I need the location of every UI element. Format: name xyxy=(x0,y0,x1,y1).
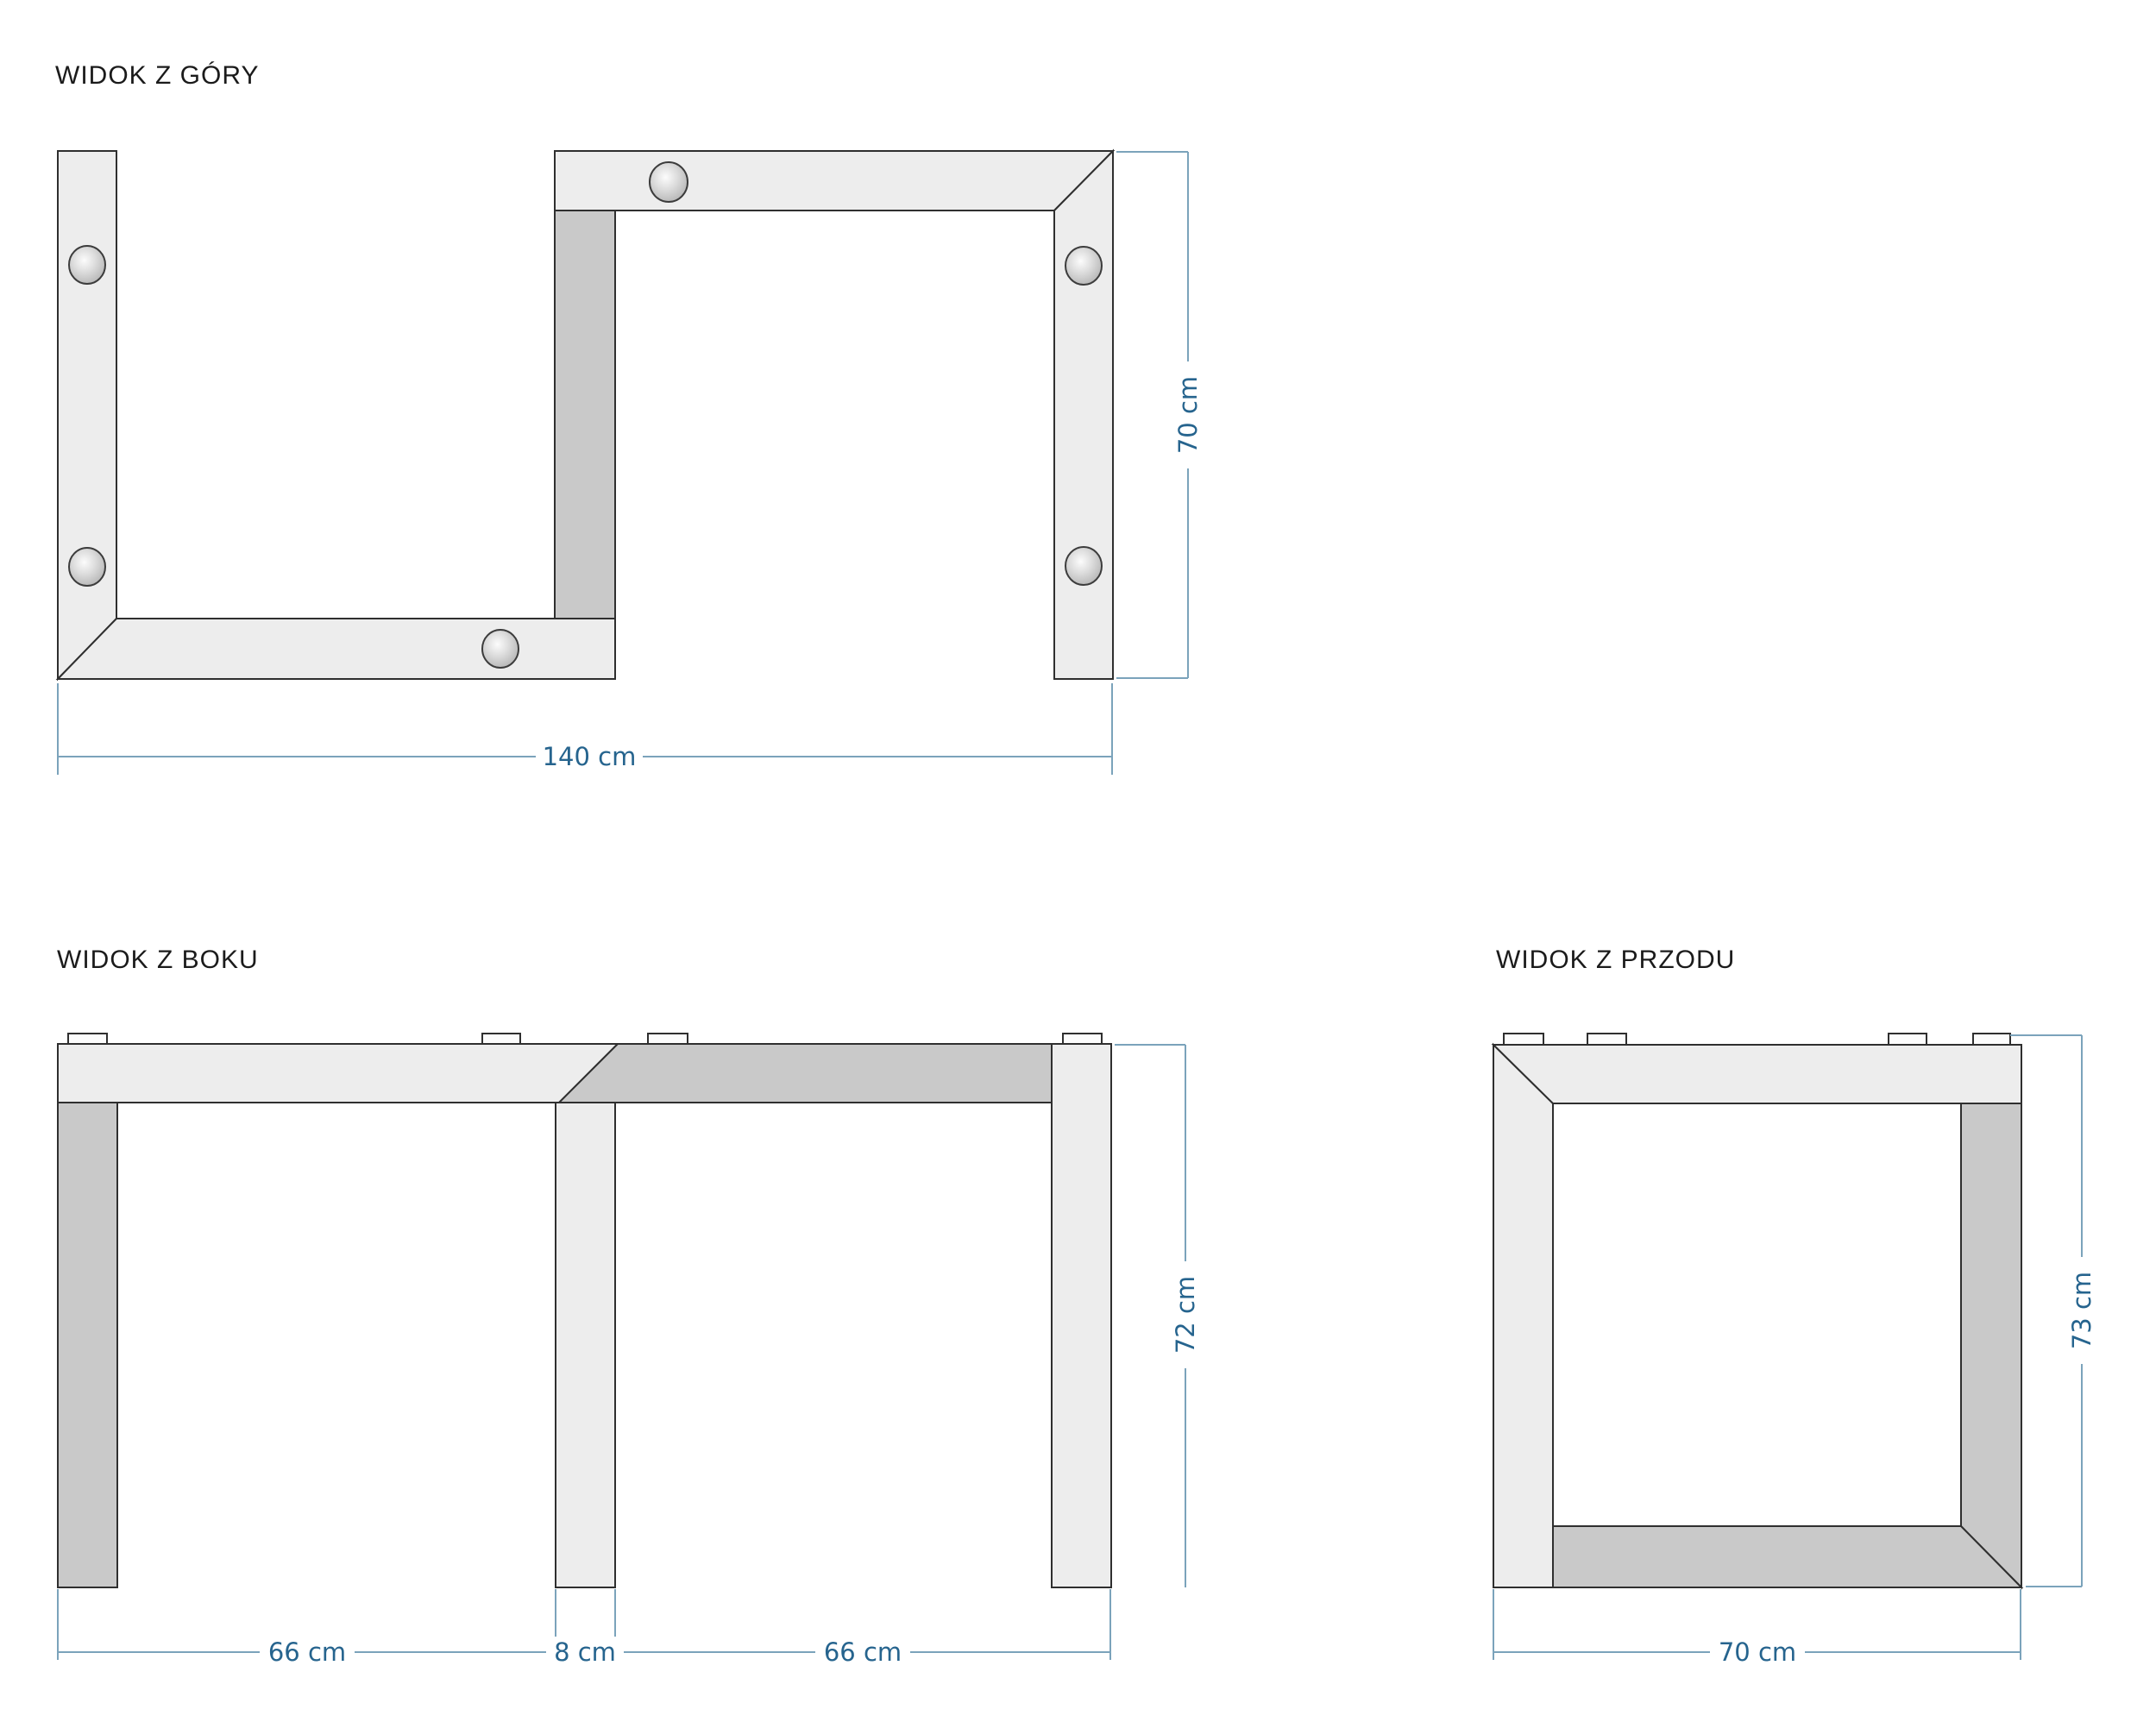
side-view-left-leg xyxy=(58,1103,117,1587)
side-view-right-leg xyxy=(1052,1044,1111,1587)
dim-label-width: 70 cm xyxy=(1719,1637,1796,1667)
screw-icon xyxy=(482,630,519,668)
top-view-bottom-rail xyxy=(58,619,615,679)
dim-label-height: 72 cm xyxy=(1171,1276,1200,1354)
dim-label-left-span: 66 cm xyxy=(268,1637,346,1667)
top-view-right-rail xyxy=(1054,151,1113,679)
side-view-left-apron xyxy=(58,1044,618,1103)
top-view-title: WIDOK Z GÓRY xyxy=(55,61,259,90)
top-view-top-rail xyxy=(555,151,1113,211)
screw-icon xyxy=(69,246,105,284)
front-view-top-rail xyxy=(1493,1045,2021,1103)
screw-icon xyxy=(650,162,688,202)
top-view: 140 cm 70 cm xyxy=(58,151,1204,775)
side-view-title: WIDOK Z BOKU xyxy=(57,946,259,974)
technical-drawing: 140 cm 70 cm 72 cm xyxy=(0,0,2156,1722)
screw-icon xyxy=(1065,547,1102,585)
front-view-title: WIDOK Z PRZODU xyxy=(1496,946,1735,974)
dim-label-height: 73 cm xyxy=(2067,1272,2096,1349)
side-view-right-apron xyxy=(559,1044,1052,1103)
top-view-left-rail xyxy=(58,151,116,679)
side-view-middle-leg xyxy=(556,1103,615,1587)
dim-label-depth: 70 cm xyxy=(1173,376,1203,454)
side-view: 72 cm 66 cm 8 cm 66 cm xyxy=(58,1034,1201,1668)
screw-icon xyxy=(69,548,105,586)
front-view-left-leg xyxy=(1493,1045,1553,1587)
drawing-canvas: 140 cm 70 cm 72 cm xyxy=(0,0,2156,1722)
top-view-middle-leg xyxy=(555,211,615,619)
dim-label-right-span: 66 cm xyxy=(824,1637,902,1667)
dim-label-width: 140 cm xyxy=(543,742,637,771)
front-view-bottom-rail xyxy=(1553,1526,2021,1587)
front-view: 73 cm 70 cm xyxy=(1493,1034,2097,1668)
dim-label-leg: 8 cm xyxy=(554,1637,616,1667)
front-view-right-leg xyxy=(1961,1103,2021,1587)
screw-icon xyxy=(1065,247,1102,285)
